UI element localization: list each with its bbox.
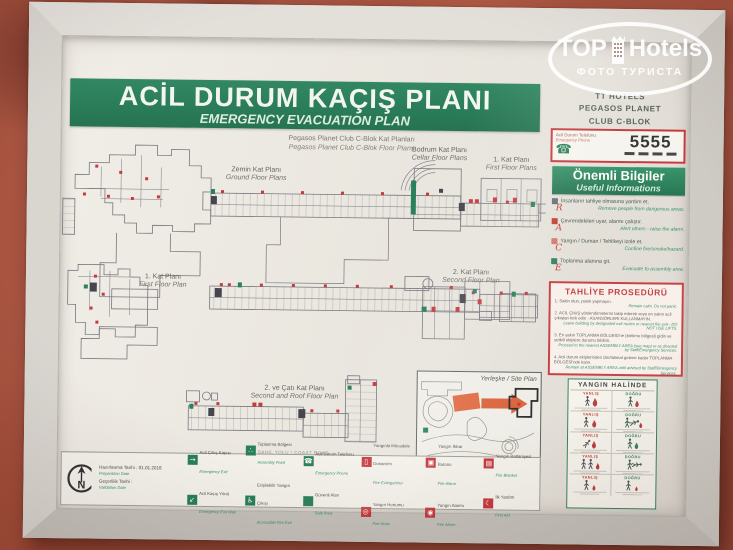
floor-plan-first-label: 1. Kat PlanıFirst Floor Plan	[139, 273, 187, 290]
procedure-step-2: 2. ACİL ÇIKIŞ yönlendirmelerini takip ed…	[554, 310, 677, 332]
safe-area-icon	[303, 497, 313, 507]
useful-info-title-tr: Önemli Bilgiler	[552, 167, 685, 184]
plan-dates: Hazırlanma Tarihi : 01.01.2018 Preparati…	[99, 465, 181, 493]
exit-door-icon: →	[188, 454, 198, 464]
info-item-alert: Çevrendekileri uyar, alarmı çalıştır. A …	[552, 218, 685, 234]
useful-info-header: Önemli Bilgiler Useful Informations	[552, 166, 685, 196]
prepared-date-label: Hazırlanma Tarihi	[99, 465, 135, 470]
prepared-date-value: 01.01.2018	[139, 465, 162, 470]
first-aid-crescent-icon: ☾	[483, 499, 493, 509]
info-item-confine: Yangın / Duman / Tehlikeyi izole et. C C…	[551, 238, 684, 254]
wheelchair-icon: ♿	[245, 496, 255, 506]
in-case-of-fire-box: YANGIN HALİNDE YANLIŞ DOĞRU YANLIŞ	[566, 378, 658, 509]
site-plan-label: Yerleşke / Site Plan	[480, 375, 536, 383]
phone-number-dashes	[617, 152, 683, 156]
fire-right-cell: DOĞRU	[612, 433, 654, 455]
fire-hose-icon: ◎	[361, 506, 371, 516]
fire-right-cell: DOĞRU	[612, 412, 654, 434]
fire-right-cell: DOĞRU	[611, 475, 653, 497]
hotel-building-icon	[609, 34, 627, 64]
info-item-remove: İnsanların tahliye olmasına yardım et. R…	[552, 198, 685, 214]
watermark-brand-left: TOP	[558, 35, 607, 63]
hotel-name: TT HOTELS PEGASOS PLANET CLUB C-BLOK	[557, 90, 683, 129]
legend-item-assembly-point: ∴ Toplanma BölgesiAssembly Point	[245, 432, 296, 469]
floor-plan-second-label: 2. Kat PlanıSecond Floor Plan	[442, 269, 500, 286]
fire-wrong-cell: YANLIŞ	[570, 411, 612, 433]
floor-plan-ground-label: Zemin Kat PlanıGround Floor Plans	[226, 166, 287, 184]
legend-item-first-aid: ☾ İlk YardımFirst Aid	[483, 485, 534, 522]
useful-info-title-en: Useful Informations	[552, 182, 685, 194]
legend-item-safe-area: Güvenli AlanSafe Area	[303, 483, 354, 520]
main-title: ACİL DURUM KAÇIŞ PLANI	[70, 80, 540, 116]
fire-right-cell: DOĞRU	[612, 391, 654, 413]
legend-item-fire-equipment: ▯ Yangınla Mücadele DonanımıFire Extingu…	[361, 434, 419, 490]
fire-wrong-cell: YANLIŞ	[569, 474, 611, 496]
procedure-step-1: 1. Sakin olun, panik yapmayın. Remain ca…	[555, 298, 678, 310]
legend-item-escape-direction: ↙ Acil Kaçış YönüEmergency Exit Way	[187, 482, 238, 519]
hotel-name-line3: CLUB C-BLOK	[557, 115, 683, 129]
escape-arrow-icon: ↙	[187, 495, 197, 505]
fire-wrong-cell: YANLIŞ	[570, 432, 612, 454]
floor-plan-cellar-label: Bodrum Kat PlanıCellar Floor Plans	[412, 146, 468, 163]
legend-item-fire-call-button: ▣ Yangın İhbar ButonuFire Alarm	[426, 435, 478, 491]
legend-item-emergency-phone: ☎ Acil Durum TelefonuEmergency Phone	[303, 442, 354, 479]
legend-item-fire-hose: ◎ Yangın HortumuFire Hose	[360, 493, 418, 530]
title-banner: ACİL DURUM KAÇIŞ PLANI EMERGENCY EVACUAT…	[70, 78, 541, 132]
legend-item-accessible-exit: ♿ Erişilebilir Yangın ÇıkışıAccessible F…	[245, 473, 297, 529]
fire-wrong-cell: YANLIŞ	[570, 390, 612, 412]
site-highlighted-block	[453, 393, 481, 412]
fire-alarm-icon: ◉	[425, 507, 435, 517]
fire-right-cell: DOĞRU	[612, 454, 654, 476]
procedure-step-3: 3. En yakın TOPLANMA BÖLGESİ'ne (birikme…	[554, 332, 677, 354]
floor-plan-first-small-label: 1. Kat PlanıFirst Floor Plans	[486, 156, 537, 173]
svg-text:N: N	[77, 479, 85, 491]
assembly-point-icon: ∴	[246, 446, 256, 456]
evacuation-procedure-box: TAHLİYE PROSEDÜRÜ 1. Sakin olun, panik y…	[548, 281, 684, 377]
legend-item-emergency-exit: → Acil Çıkış KapısıEmergency Exit	[187, 441, 238, 478]
legend-item-fire-blanket: ▤ Yangın BattaniyesiFire Blanket	[484, 445, 535, 482]
phone-icon: ☎	[303, 456, 313, 466]
emergency-phone-box: Acil Durum Telefonu Emergency Phone ☎ 55…	[550, 128, 685, 164]
legend-strip: N Hazırlanma Tarihi : 01.01.2018 Prepara…	[60, 451, 541, 511]
photo-of-evacuation-plan: { "watermark": { "brand_left": "TOP", "b…	[0, 0, 733, 550]
info-item-evacuate: Toplanma alanına git. E Evacuate to asse…	[551, 258, 684, 274]
fire-blanket-icon: ▤	[484, 458, 494, 468]
fire-call-button-icon: ▣	[426, 457, 436, 467]
fire-do-dont-table: YANLIŞ DOĞRU YANLIŞ DOĞRU	[569, 389, 654, 496]
emergency-phone-number: 5555	[618, 133, 684, 151]
procedure-step-4: 4. Acil durum ekiplerinden izin/talimat …	[554, 354, 677, 376]
fire-wrong-cell: YANLIŞ	[570, 453, 612, 475]
watermark-tagline: ФОТО ТУРИСТА	[548, 66, 712, 78]
valid-date-label: Geçerlilik Tarihi	[99, 479, 130, 484]
legend-item-fire-alarm: ◉ Yangın AlarmıFire Alarm	[425, 494, 476, 531]
phone-icon: ☎	[555, 144, 617, 159]
site-arrow	[481, 393, 527, 414]
fire-extinguisher-icon: ▯	[361, 456, 371, 466]
floor-plan-second-roof-label: 2. ve Çatı Kat PlanıSecond and Roof Floo…	[250, 385, 338, 403]
fire-box-title: YANGIN HALİNDE	[571, 381, 655, 389]
useful-info-list: İnsanların tahliye olmasına yardım et. R…	[551, 198, 685, 280]
watermark-brand-right: Hotels	[629, 35, 702, 63]
north-compass-icon: N	[66, 463, 92, 493]
procedure-title: TAHLİYE PROSEDÜRÜ	[555, 286, 678, 298]
tophotels-watermark: TOP Hotels ФОТО ТУРИСТА	[548, 22, 712, 96]
evacuation-plan-poster: ACİL DURUM KAÇIŞ PLANI EMERGENCY EVACUAT…	[57, 36, 691, 516]
